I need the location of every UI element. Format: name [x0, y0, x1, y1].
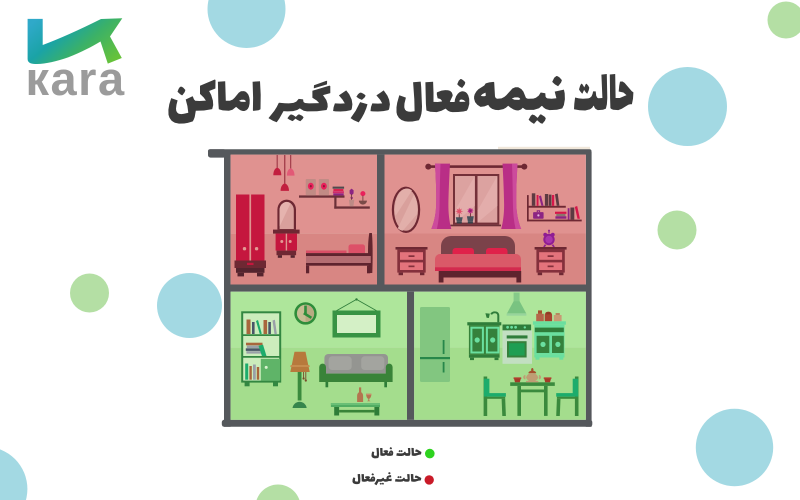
svg-text:кara: кara [26, 52, 126, 105]
